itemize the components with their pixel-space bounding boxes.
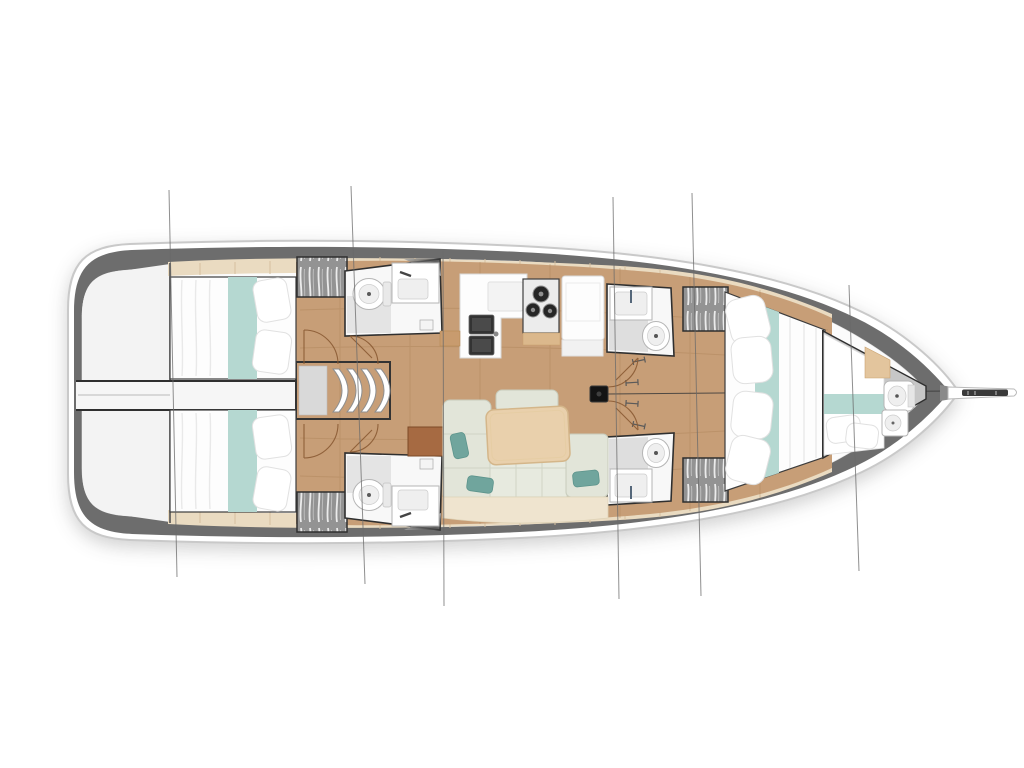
sofa-base xyxy=(443,497,608,523)
wardrobe-mid-top xyxy=(683,287,728,331)
corridor xyxy=(76,381,296,410)
galley-faucet xyxy=(494,332,499,337)
steps-landing xyxy=(299,366,327,415)
sofa-right-seat xyxy=(566,434,608,497)
wardrobe-aft-top xyxy=(297,257,347,297)
pillow xyxy=(251,329,292,376)
aft-cabin-bed-bottom xyxy=(170,410,296,513)
floor-plan-page xyxy=(0,0,1024,768)
sink-basin xyxy=(398,279,428,299)
pillow xyxy=(252,276,293,323)
floor-plan-svg xyxy=(0,0,1024,768)
counter-recess xyxy=(488,282,523,311)
bowsprit xyxy=(940,385,1017,401)
toilet-tank xyxy=(383,282,391,306)
aft-cabin-bed-top xyxy=(170,276,296,379)
mast-foot xyxy=(590,386,608,402)
wardrobe-aft-bottom xyxy=(297,492,347,532)
pillow xyxy=(845,422,880,450)
stove-shelf xyxy=(523,333,560,345)
toilet-tank xyxy=(908,385,915,407)
head-aft-top xyxy=(345,259,442,336)
teal-cushion xyxy=(572,470,599,488)
salon-table xyxy=(486,406,571,465)
bed-runner xyxy=(824,394,884,414)
teal-cushion xyxy=(466,475,494,493)
fridge xyxy=(562,276,604,340)
soap-dish xyxy=(420,320,433,330)
head-aft-bottom xyxy=(345,453,442,530)
pillow xyxy=(730,390,775,440)
wardrobe-mid-bottom xyxy=(683,458,728,502)
head-mid-top xyxy=(607,284,674,356)
pillow xyxy=(730,335,774,384)
anchor-roller-slot xyxy=(962,390,1008,397)
